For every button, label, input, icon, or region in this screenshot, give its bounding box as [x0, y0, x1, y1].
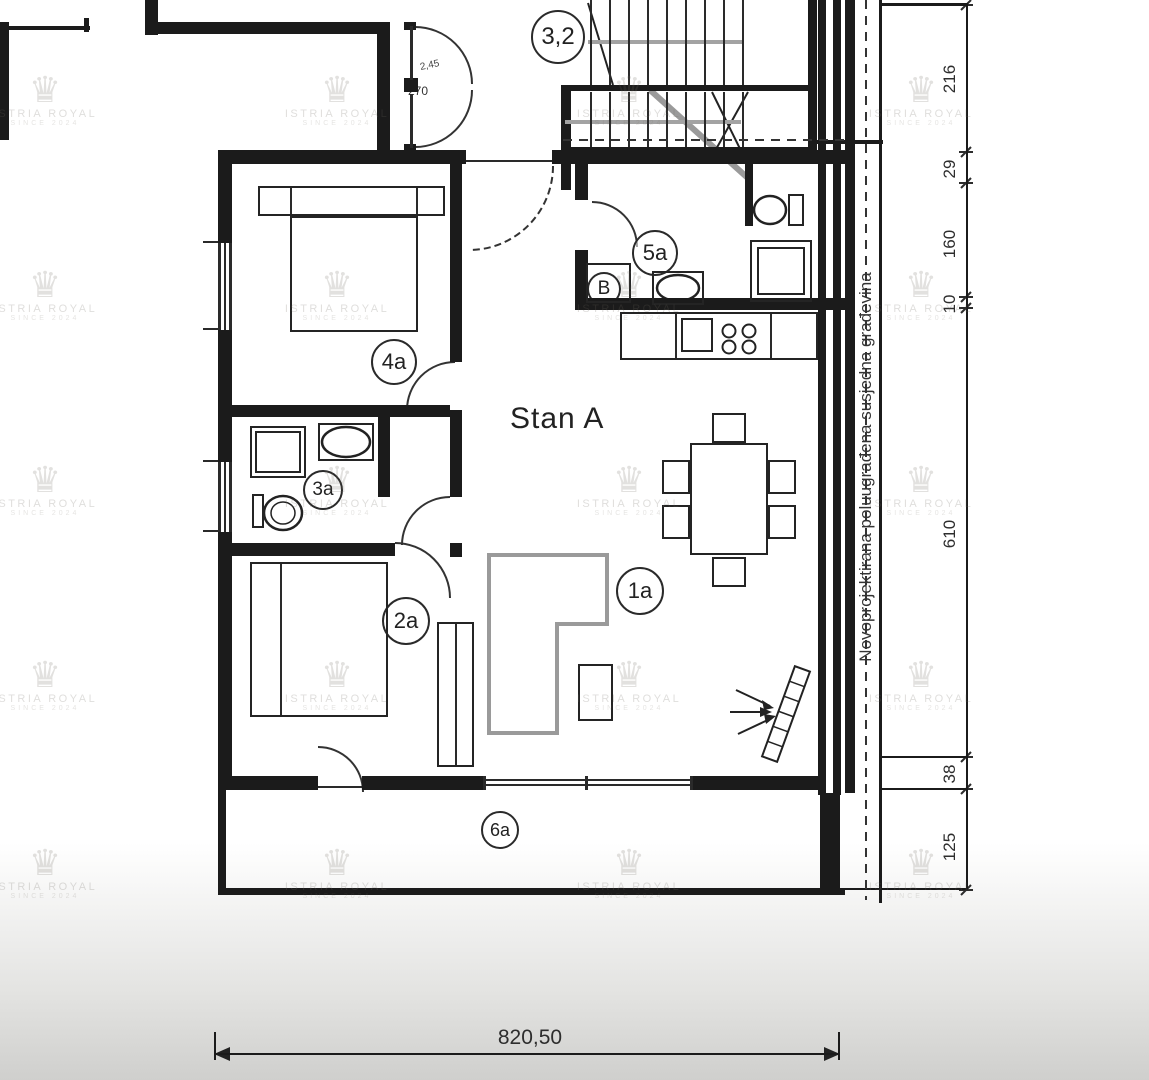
toilet-3a-bowl — [264, 496, 302, 530]
kitchen-counter — [620, 312, 818, 360]
bed-4a-body — [290, 216, 418, 332]
toilet-5a-bowl — [754, 196, 786, 224]
stair-bottom-line — [563, 147, 810, 151]
vestibule-left-wall — [377, 22, 390, 152]
entry-door-hinge — [404, 78, 418, 92]
stair-tread-u7 — [723, 0, 725, 85]
dim-38: 38 — [940, 744, 960, 804]
toilet-3a-tank — [252, 494, 264, 528]
chair-left-1 — [662, 460, 690, 494]
entry-door-arc-lower — [415, 90, 472, 147]
left-wall-2 — [218, 330, 232, 462]
stair-landing-line — [563, 85, 810, 91]
window2-glass-3 — [229, 462, 232, 532]
stair-tread-u3 — [647, 0, 649, 85]
label-stairwell-text: 3,2 — [541, 23, 574, 51]
south-window-jamb-2 — [585, 776, 588, 790]
shaft-wall — [378, 417, 390, 497]
dim-end-left — [214, 1032, 216, 1060]
window1-tick-bottom — [203, 328, 218, 330]
right-wall-inner — [818, 150, 826, 795]
stair-gray-line-1 — [588, 40, 742, 44]
bed-4a-headboard — [258, 186, 445, 216]
bottom-wall-2 — [362, 776, 485, 790]
stair-ramp-gray — [650, 90, 750, 180]
stair-tread-u0 — [590, 0, 592, 85]
ladder — [762, 666, 810, 762]
south-window-jamb-3 — [690, 776, 693, 790]
label-bedroom2: 2a — [382, 597, 430, 645]
window1-tick-top — [203, 241, 218, 243]
label-bath-upper: 5a — [632, 230, 678, 276]
stair-tread-u6 — [704, 0, 706, 85]
wardrobe-2a — [437, 622, 474, 767]
terrace-right-wall — [820, 793, 840, 895]
direction-arrows — [730, 690, 776, 734]
apartment-title: Stan A — [510, 402, 604, 436]
dim-29: 29 — [940, 139, 960, 199]
south-window-glass-1 — [485, 779, 692, 781]
floor-plan: 3,2 5a B 4a 3a 2a 1a 6a Stan A Novoproje… — [0, 0, 1149, 1080]
chair-right-1 — [768, 460, 796, 494]
window2-glass-2 — [224, 462, 226, 532]
fragment-wall-v — [0, 22, 9, 140]
entry-door-leaf-1 — [410, 26, 413, 80]
dim-line-bottom — [215, 1053, 840, 1055]
apartment-door-arc — [469, 166, 553, 250]
dim-ext-38b — [880, 788, 968, 790]
right-wall-outer-top — [833, 0, 841, 150]
int-wall-4a-3a — [232, 405, 450, 417]
int-wall-toilet-nook — [745, 164, 753, 226]
toilet-3a-inner — [271, 502, 295, 524]
int-wall-hall-a — [450, 164, 462, 362]
boundary-line — [879, 0, 882, 903]
int-wall-3a-2a — [232, 543, 395, 556]
label-bathroom-text: 3a — [312, 479, 333, 501]
window1-glass-3 — [229, 243, 232, 330]
apt-top-wall-west — [218, 150, 466, 164]
stair-tread-u2 — [628, 0, 630, 85]
label-bathroom: 3a — [303, 470, 343, 510]
dim-ext-38a — [880, 756, 968, 758]
bed-2a — [250, 562, 388, 717]
left-wall-1 — [218, 164, 232, 243]
coffee-table — [578, 664, 613, 721]
entrance-threshold — [466, 160, 552, 162]
chair-right-2 — [768, 505, 796, 539]
dim-ext-bottom — [843, 888, 968, 890]
label-terrace-text: 6a — [490, 820, 510, 841]
dim-ext-top — [880, 3, 968, 6]
south-window-jamb-1 — [483, 776, 486, 790]
label-bath-upper-text: 5a — [643, 240, 667, 266]
boundary-center-dash — [865, 0, 867, 900]
int-wall-hall-b — [450, 410, 462, 497]
label-stairwell: 3,2 — [531, 10, 585, 64]
stair-tread-u4 — [666, 0, 668, 85]
label-bedroom1: 4a — [371, 339, 417, 385]
dim-125: 125 — [940, 817, 960, 877]
bathroom3a-door-arc — [402, 497, 450, 545]
stair-right-wall — [808, 0, 817, 152]
terrace-bottom-rail — [218, 888, 845, 895]
sink-3a-counter — [318, 423, 374, 461]
kitchen-sink — [681, 318, 713, 352]
dim-end-right — [838, 1032, 840, 1060]
label-living-text: 1a — [628, 578, 652, 604]
dining-table — [690, 443, 768, 555]
bottom-wall-1 — [218, 776, 318, 790]
entry-door-leaf-2 — [410, 94, 413, 148]
bath5a-door-arc — [592, 202, 637, 247]
stair-tread-u5 — [685, 0, 687, 85]
entry-door-arc-upper — [415, 27, 472, 84]
chair-left-2 — [662, 505, 690, 539]
terrace-door-threshold — [318, 786, 362, 788]
label-bedroom1-text: 4a — [382, 349, 406, 375]
stair-left-wall — [561, 85, 571, 190]
left-wall-3 — [218, 532, 232, 790]
window1-glass-2 — [224, 243, 226, 330]
dim-160: 160 — [940, 214, 960, 274]
window1-glass-1 — [218, 243, 221, 330]
chair-top — [712, 413, 746, 443]
toilet-5a-tank — [788, 194, 804, 226]
int-wall-post — [450, 543, 462, 557]
bedroom2a-door-arc — [395, 543, 450, 598]
window2-tick-bottom — [203, 530, 218, 532]
dim-10: 10 — [940, 274, 960, 334]
right-wall-inner-top — [818, 0, 826, 150]
sink-5a-counter — [652, 271, 704, 305]
dim-total-bottom: 820,50 — [480, 1026, 580, 1050]
label-terrace: 6a — [481, 811, 519, 849]
window2-tick-top — [203, 460, 218, 462]
south-window-glass-2 — [485, 784, 692, 786]
chair-bottom — [712, 557, 746, 587]
stair-cut-dash — [563, 139, 845, 141]
neighbor-wall — [845, 0, 855, 793]
washing-machine — [586, 263, 631, 303]
dim-216: 216 — [940, 49, 960, 109]
fragment-wall-h — [0, 26, 90, 30]
dim-610: 610 — [940, 504, 960, 564]
label-bedroom2-text: 2a — [394, 608, 418, 634]
right-wall-outer — [833, 150, 841, 795]
stair-tread-u8 — [742, 0, 744, 85]
window2-glass-1 — [218, 462, 221, 532]
shower-3a-inner — [255, 431, 301, 473]
fragment-tick — [84, 18, 89, 32]
vestibule-top-wall — [145, 22, 390, 34]
stair-tread-u1 — [609, 0, 611, 85]
bottom-wall-3 — [692, 776, 818, 790]
int-wall-hall-5a-a — [575, 164, 588, 200]
label-living: 1a — [616, 567, 664, 615]
shower-5a-inner — [757, 247, 805, 295]
dim-line-vertical — [966, 4, 968, 890]
terrace-left-rail — [218, 790, 226, 895]
apt-top-wall-east — [552, 150, 845, 164]
